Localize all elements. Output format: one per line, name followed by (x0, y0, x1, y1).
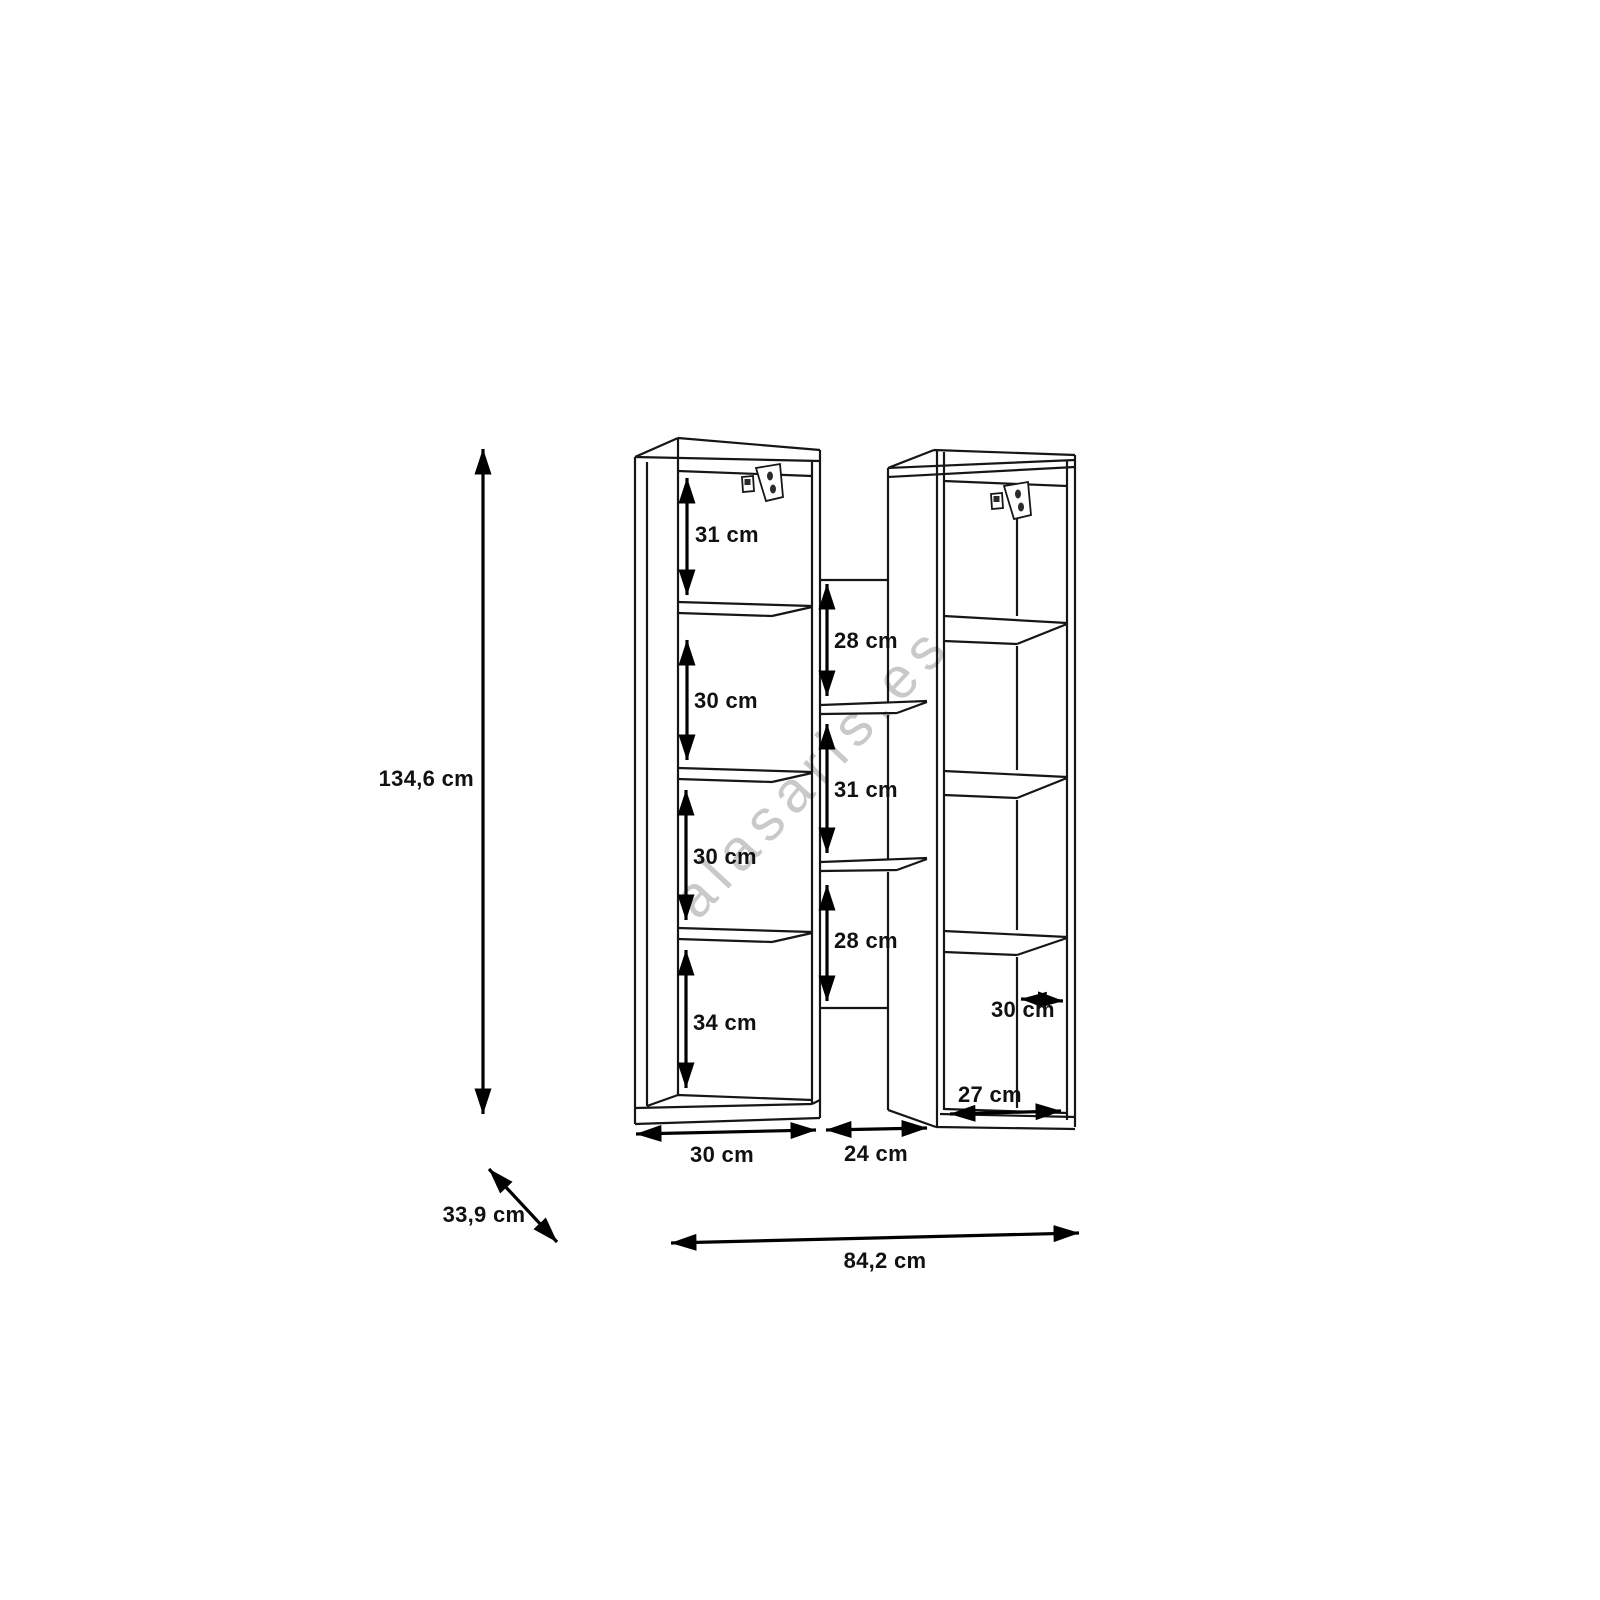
label-total-height: 134,6 cm (379, 766, 474, 791)
label-middle-width: 24 cm (844, 1141, 908, 1166)
wall-bracket-right-icon (991, 482, 1031, 519)
left-column-shelf-3 (678, 928, 812, 942)
dim-arrow-middle-width (826, 1128, 927, 1130)
right-column-shelf-3 (944, 931, 1067, 955)
label-left-width: 30 cm (690, 1142, 754, 1167)
middle-shelf-2 (821, 858, 927, 871)
left-column-interior-top-edge (678, 471, 812, 476)
right-column-shelf-1 (944, 616, 1067, 644)
label-total-depth: 33,9 cm (443, 1202, 526, 1227)
label-left-comp-1: 31 cm (695, 522, 759, 547)
label-right-width: 27 cm (958, 1082, 1022, 1107)
left-column-top-panel (635, 438, 820, 461)
dim-arrow-total-width (671, 1233, 1079, 1243)
technical-drawing: 31 cm 30 cm 30 cm 34 cm 28 cm 31 cm 28 c… (0, 0, 1600, 1600)
label-left-comp-4: 34 cm (693, 1010, 757, 1035)
right-column-shelf-2 (944, 771, 1067, 798)
label-mid-comp-3: 28 cm (834, 928, 898, 953)
label-left-comp-2: 30 cm (694, 688, 758, 713)
left-column-bottom-panel (635, 1095, 820, 1124)
dim-arrow-left-width (636, 1130, 816, 1134)
wall-bracket-left-icon (742, 464, 783, 501)
right-column-top-panel (888, 450, 1075, 477)
dimension-arrows-left-column (686, 478, 687, 1088)
label-right-shelf-width: 30 cm (991, 997, 1055, 1022)
left-column-shelf-1 (678, 602, 812, 616)
right-column-side-panels (937, 451, 1075, 1127)
dim-arrow-right-width (950, 1111, 1061, 1114)
label-total-width: 84,2 cm (844, 1248, 927, 1273)
right-column (888, 450, 1075, 1129)
furniture-dimension-sheet: 31 cm 30 cm 30 cm 34 cm 28 cm 31 cm 28 c… (0, 0, 1600, 1600)
